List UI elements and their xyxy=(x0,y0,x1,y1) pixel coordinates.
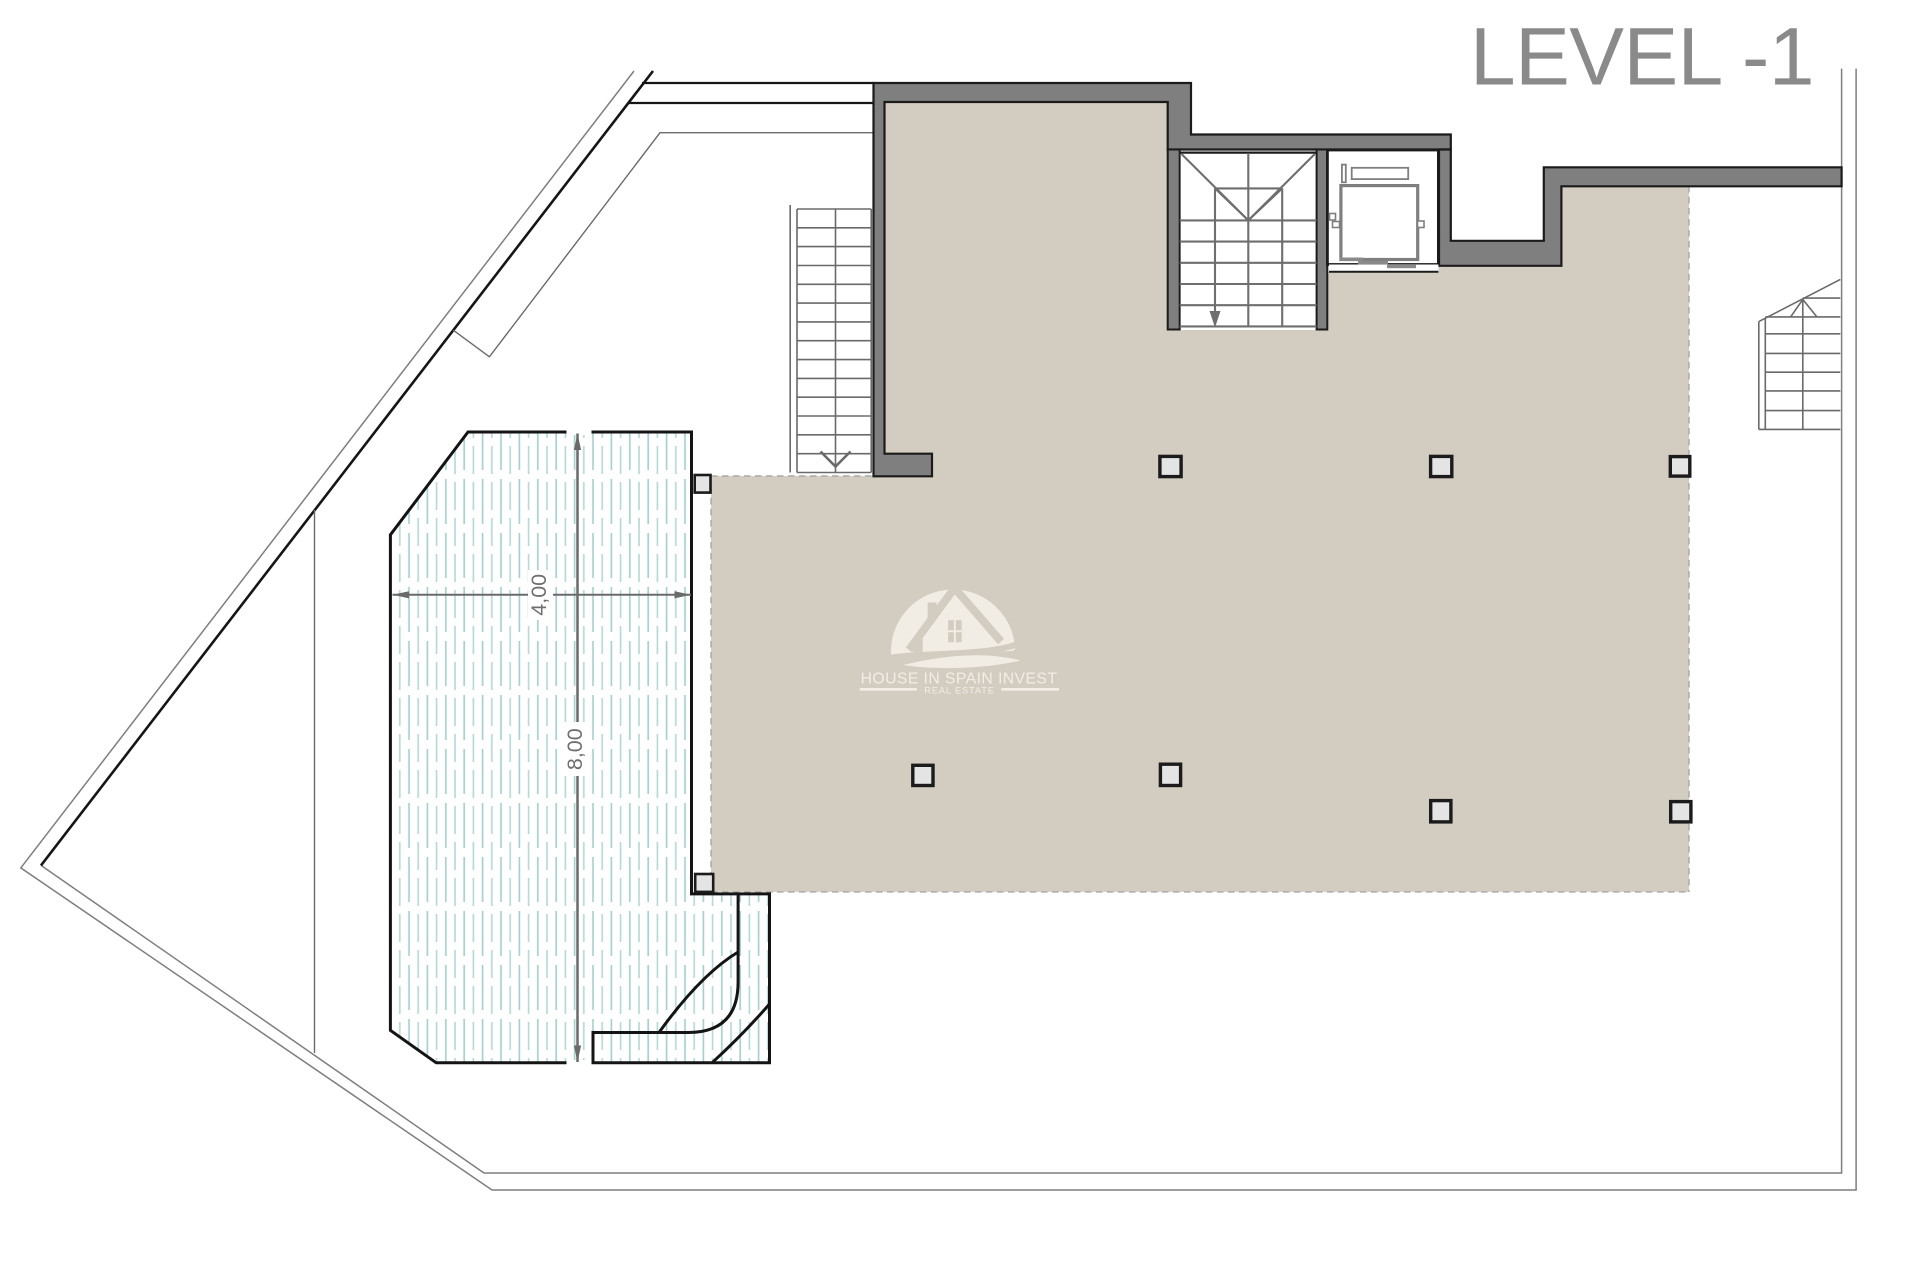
svg-text:4,00: 4,00 xyxy=(527,574,551,616)
svg-text:8,00: 8,00 xyxy=(563,728,587,770)
svg-text:REAL ESTATE: REAL ESTATE xyxy=(924,685,994,695)
svg-text:LEVEL -1: LEVEL -1 xyxy=(1470,11,1814,102)
